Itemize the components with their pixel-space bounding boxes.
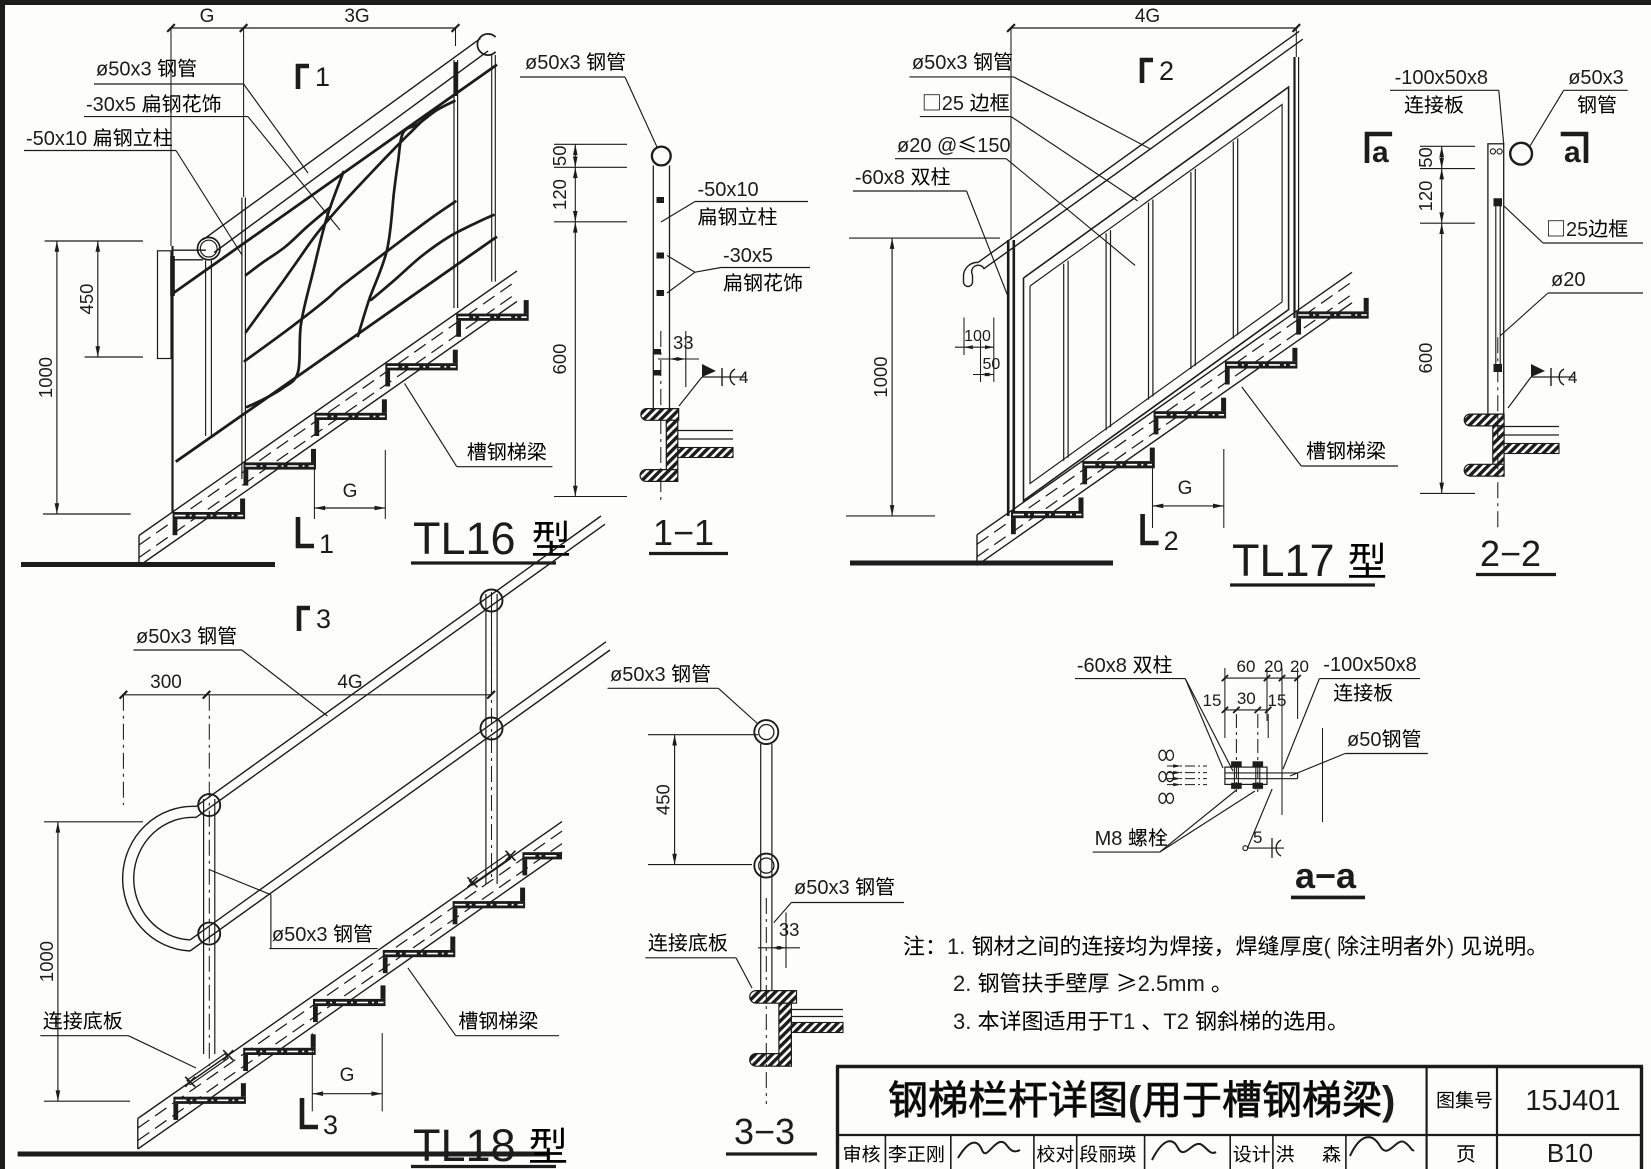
svg-text:50: 50	[983, 356, 1001, 373]
svg-text:G: G	[200, 6, 215, 27]
svg-text:3−3: 3−3	[734, 1111, 795, 1152]
svg-text:120: 120	[1415, 181, 1436, 212]
svg-text:2−2: 2−2	[1480, 533, 1541, 574]
svg-text:1: 1	[319, 529, 334, 559]
svg-text:ø20 @: ø20 @	[897, 135, 957, 157]
svg-text:-50x10: -50x10	[26, 128, 87, 150]
svg-text:4: 4	[1568, 368, 1577, 387]
svg-text:15J401: 15J401	[1525, 1085, 1620, 1117]
svg-text:1000: 1000	[870, 356, 891, 397]
svg-text:-50x10: -50x10	[698, 179, 759, 201]
svg-text:1−1: 1−1	[653, 512, 714, 553]
svg-text:TL16: TL16	[413, 513, 516, 564]
svg-text:20: 20	[1290, 657, 1309, 676]
svg-text:450: 450	[653, 784, 674, 815]
svg-text:G: G	[343, 481, 358, 502]
svg-text:-100x50x8: -100x50x8	[1395, 67, 1488, 89]
svg-text:B10: B10	[1547, 1138, 1593, 1168]
svg-text:25: 25	[1566, 219, 1588, 241]
svg-text:25: 25	[942, 93, 964, 115]
svg-text:30: 30	[1237, 689, 1256, 708]
svg-text:ø50x3: ø50x3	[96, 59, 152, 81]
svg-text:-30x5: -30x5	[86, 94, 136, 116]
svg-text:600: 600	[549, 344, 570, 375]
svg-text:-100x50x8: -100x50x8	[1323, 654, 1416, 676]
svg-text:3.: 3.	[953, 1009, 971, 1034]
svg-text:33: 33	[673, 332, 694, 353]
svg-text:ø20: ø20	[1551, 269, 1585, 291]
svg-text:1: 1	[315, 62, 330, 92]
svg-text:a−a: a−a	[1295, 855, 1357, 896]
svg-text:ø50x3: ø50x3	[136, 626, 192, 648]
svg-text:ø50x3: ø50x3	[525, 52, 581, 74]
svg-text:a: a	[1372, 136, 1389, 169]
svg-text:33: 33	[779, 919, 800, 940]
svg-text:1.: 1.	[947, 934, 965, 959]
svg-text:5: 5	[1253, 828, 1262, 847]
svg-text:3: 3	[323, 1110, 338, 1140]
svg-text:TL18: TL18	[413, 1120, 516, 1169]
svg-text:60: 60	[1237, 657, 1256, 676]
svg-text:15: 15	[1203, 691, 1222, 710]
svg-text:(: (	[1324, 934, 1332, 959]
svg-text:G: G	[340, 1065, 355, 1086]
svg-text:T2: T2	[1163, 1009, 1189, 1034]
svg-text:50: 50	[549, 146, 570, 167]
svg-text:-60x8: -60x8	[855, 167, 905, 189]
svg-text:2.: 2.	[953, 971, 971, 996]
svg-text:ø50x3: ø50x3	[794, 877, 850, 899]
svg-text:1000: 1000	[36, 941, 57, 982]
svg-text:2.5mm: 2.5mm	[1138, 971, 1205, 996]
svg-text:50: 50	[1415, 147, 1436, 168]
svg-text:M8: M8	[1095, 828, 1123, 850]
svg-text:120: 120	[549, 179, 570, 210]
svg-text:2: 2	[1159, 56, 1174, 86]
svg-text:G: G	[1178, 478, 1193, 499]
svg-text:ø50x3: ø50x3	[272, 924, 328, 946]
svg-text:(: (	[1128, 1079, 1142, 1123]
svg-text:4G: 4G	[1135, 6, 1160, 27]
svg-text:100: 100	[964, 328, 991, 345]
svg-text:ø50x3: ø50x3	[1568, 67, 1624, 89]
svg-text:): )	[1382, 1079, 1395, 1123]
svg-text:ø50: ø50	[1347, 729, 1381, 751]
svg-text:-30x5: -30x5	[723, 245, 773, 267]
svg-text:450: 450	[76, 284, 97, 315]
svg-text:): )	[1447, 934, 1454, 959]
svg-text:3: 3	[316, 604, 331, 634]
svg-text:2: 2	[1164, 526, 1179, 556]
svg-text:ø50x3: ø50x3	[912, 52, 968, 74]
svg-text:300: 300	[150, 672, 182, 693]
svg-text:4: 4	[739, 368, 748, 387]
svg-text:TL17: TL17	[1232, 535, 1335, 586]
svg-text:ø50x3: ø50x3	[610, 664, 666, 686]
svg-text:3G: 3G	[344, 6, 369, 27]
svg-text:T1: T1	[1110, 1009, 1136, 1034]
svg-text:a: a	[1564, 136, 1581, 169]
svg-text:-60x8: -60x8	[1077, 655, 1127, 677]
svg-text:1000: 1000	[35, 357, 56, 398]
svg-text:15: 15	[1268, 691, 1287, 710]
svg-text:600: 600	[1415, 343, 1436, 374]
svg-text:150: 150	[977, 135, 1010, 157]
